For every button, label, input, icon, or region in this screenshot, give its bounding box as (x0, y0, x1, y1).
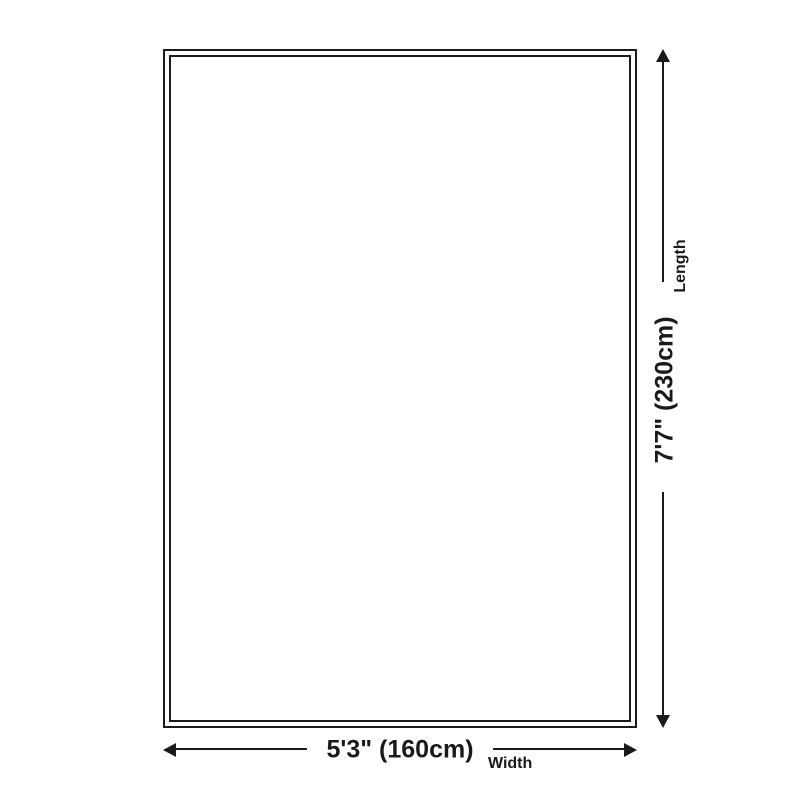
length-label: Length (673, 239, 689, 292)
length-arrow-line-top (662, 60, 664, 282)
width-arrow-line-left (176, 748, 307, 750)
width-arrow-line-right (493, 748, 624, 750)
length-value: 7'7" (230cm) (653, 316, 678, 463)
rug-outline-outer (163, 49, 637, 728)
width-value: 5'3" (160cm) (326, 738, 473, 763)
length-arrow-line-bottom (662, 492, 664, 716)
size-diagram: Length 7'7" (230cm) 5'3" (160cm) Width (0, 0, 800, 800)
arrow-left-icon (163, 743, 176, 757)
rug-outline-inner (169, 55, 631, 722)
arrow-down-icon (656, 715, 670, 728)
width-label: Width (488, 756, 532, 772)
arrow-right-icon (624, 743, 637, 757)
